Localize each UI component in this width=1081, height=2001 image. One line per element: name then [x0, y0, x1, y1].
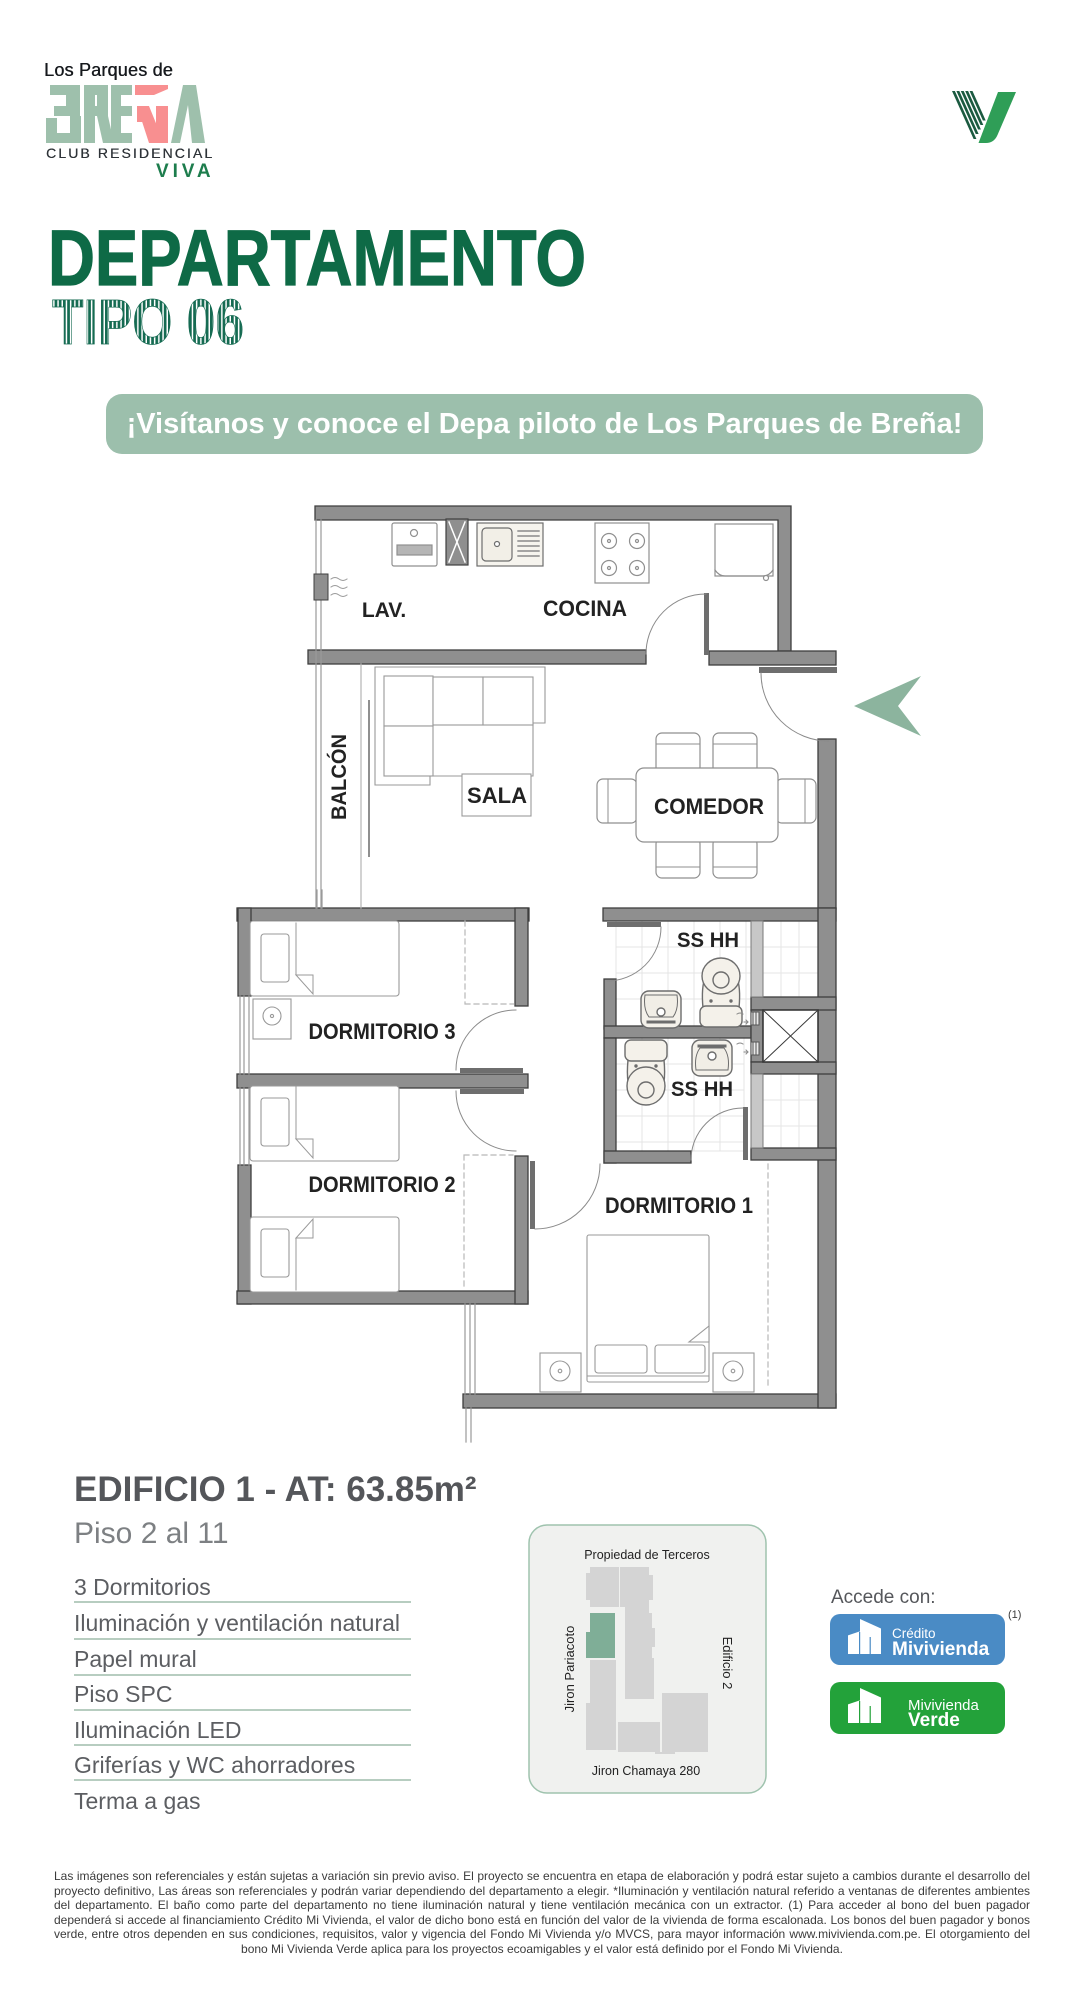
- svg-text:DORMITORIO 1: DORMITORIO 1: [605, 1193, 753, 1218]
- svg-text:DORMITORIO 2: DORMITORIO 2: [309, 1172, 456, 1197]
- svg-text:SS HH: SS HH: [671, 1078, 733, 1101]
- svg-text:Jiron Chamaya 280: Jiron Chamaya 280: [592, 1764, 700, 1778]
- svg-text:Edificio 2: Edificio 2: [720, 1637, 735, 1690]
- svg-text:TIPO 06: TIPO 06: [52, 286, 244, 358]
- svg-text:LAV.: LAV.: [362, 599, 406, 622]
- svg-text:SALA: SALA: [467, 783, 527, 808]
- svg-text:BALCÓN: BALCÓN: [327, 734, 351, 820]
- svg-text:SS HH: SS HH: [677, 929, 739, 952]
- svg-text:COMEDOR: COMEDOR: [654, 794, 764, 819]
- svg-text:Propiedad de Terceros: Propiedad de Terceros: [584, 1548, 710, 1562]
- svg-text:DORMITORIO 3: DORMITORIO 3: [309, 1019, 456, 1044]
- svg-text:Jiron Pariacoto: Jiron Pariacoto: [562, 1626, 577, 1713]
- svg-text:COCINA: COCINA: [543, 596, 627, 621]
